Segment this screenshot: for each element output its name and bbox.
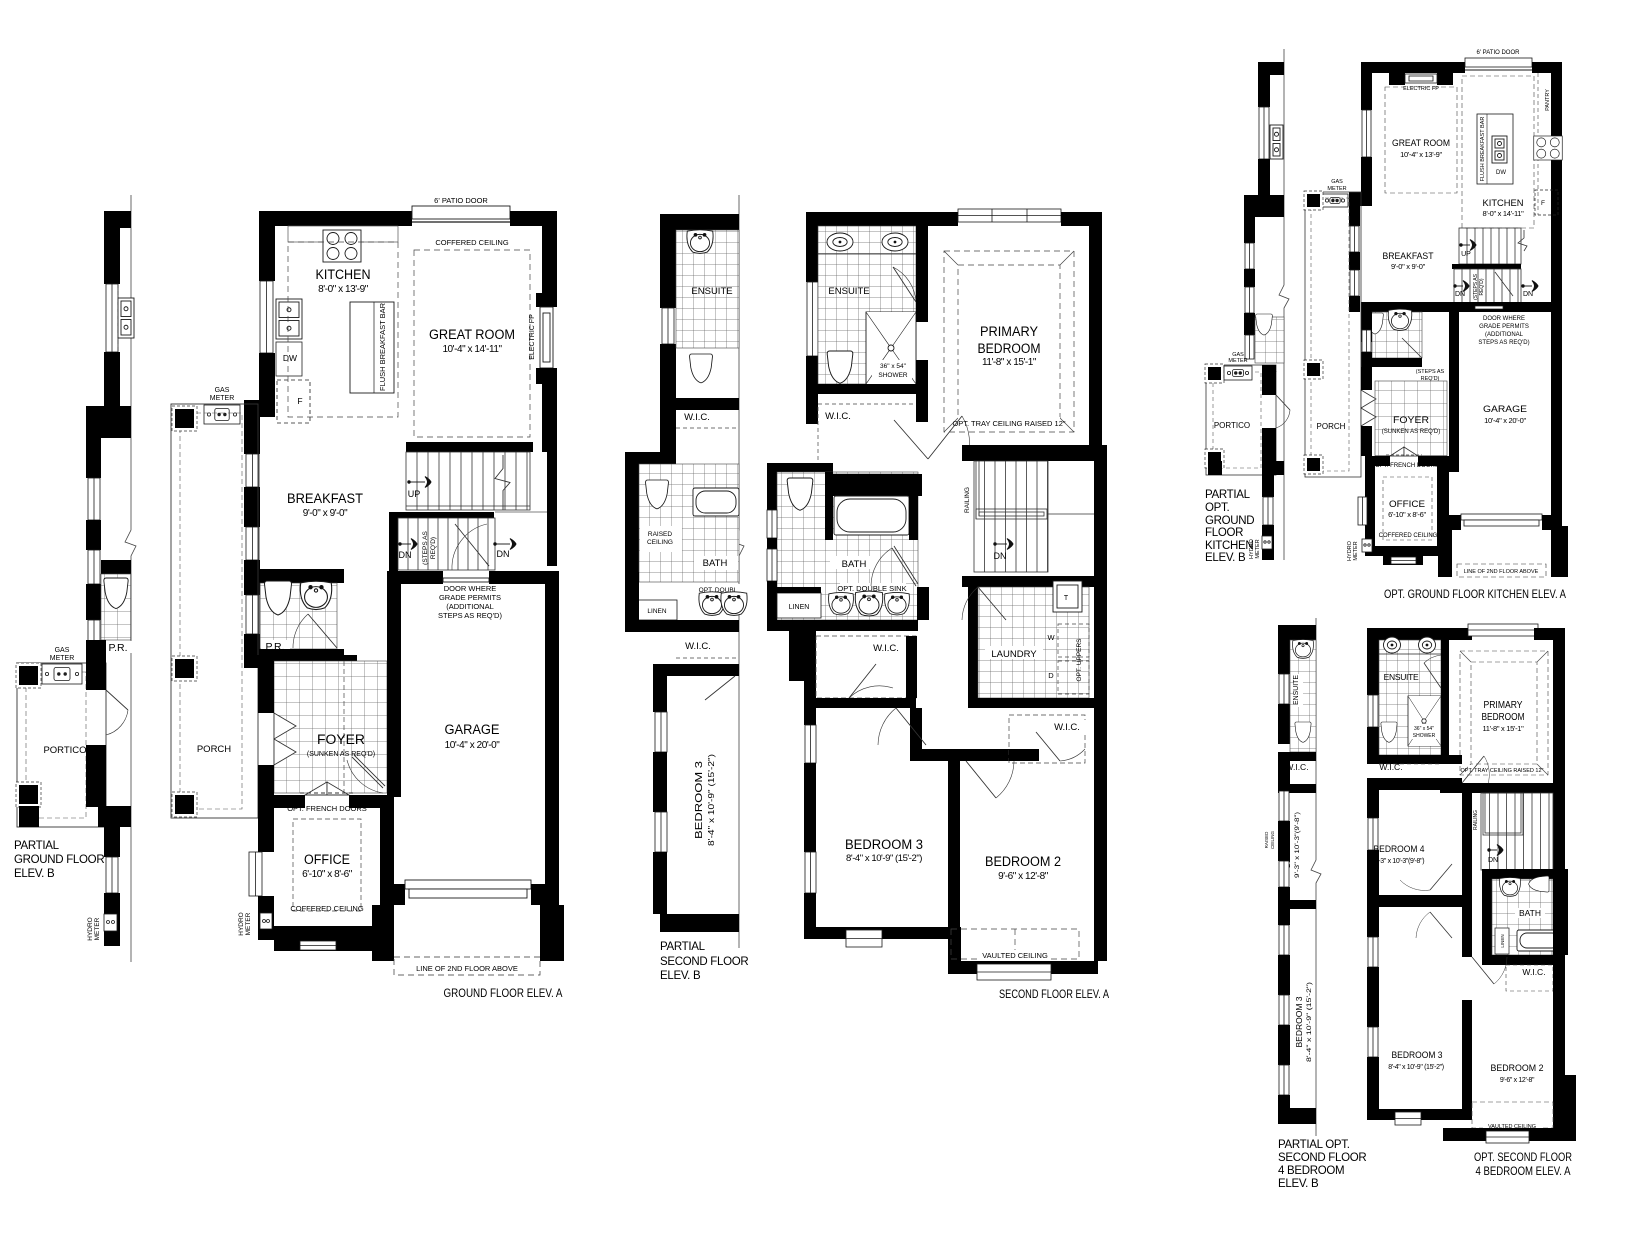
svg-text:8'-4" x 10'-9" (15'-2"): 8'-4" x 10'-9" (15'-2")	[1388, 1064, 1444, 1071]
svg-text:F: F	[297, 396, 302, 406]
svg-text:PARTIAL: PARTIAL	[14, 840, 60, 852]
svg-text:PRIMARY: PRIMARY	[980, 324, 1038, 339]
svg-text:ELEV. B: ELEV. B	[1278, 1178, 1319, 1190]
svg-text:METER: METER	[1327, 186, 1346, 192]
svg-text:W.I.C.: W.I.C.	[1054, 722, 1080, 733]
svg-text:COFFERED CEILING: COFFERED CEILING	[290, 904, 364, 913]
svg-text:OFFICE: OFFICE	[304, 852, 350, 867]
svg-text:11'-8" x 15'-1": 11'-8" x 15'-1"	[1482, 724, 1524, 733]
svg-text:8'-4" x 10'-9" (15'-2"): 8'-4" x 10'-9" (15'-2")	[707, 754, 716, 846]
svg-text:GROUND: GROUND	[1205, 515, 1254, 527]
svg-text:36" x 54": 36" x 54"	[880, 363, 907, 370]
svg-text:F: F	[1541, 200, 1545, 207]
svg-text:RAILING: RAILING	[964, 487, 971, 513]
svg-text:BATH: BATH	[703, 558, 728, 569]
svg-text:(ADDITIONAL: (ADDITIONAL	[446, 602, 494, 611]
svg-text:LINE OF 2ND FLOOR ABOVE: LINE OF 2ND FLOOR ABOVE	[416, 964, 518, 973]
svg-text:BEDROOM 3: BEDROOM 3	[1392, 1050, 1443, 1061]
svg-text:DN: DN	[1488, 857, 1498, 864]
svg-text:ENSUITE: ENSUITE	[1291, 675, 1300, 705]
svg-text:OPT.: OPT.	[1205, 502, 1229, 514]
svg-text:ELEV. B: ELEV. B	[660, 970, 701, 982]
svg-text:LINEN: LINEN	[1500, 934, 1505, 947]
svg-text:W.I.C.: W.I.C.	[1522, 967, 1545, 977]
svg-text:W.I.C.: W.I.C.	[685, 641, 711, 652]
svg-text:GAS: GAS	[55, 647, 70, 654]
svg-text:OPT. GROUND FLOOR KITCHEN ELEV: OPT. GROUND FLOOR KITCHEN ELEV. A	[1384, 587, 1566, 601]
svg-text:BREAKFAST: BREAKFAST	[1383, 251, 1434, 262]
svg-text:CEILING: CEILING	[1270, 831, 1275, 850]
svg-text:HYDRO: HYDRO	[87, 917, 94, 940]
svg-text:LINEN: LINEN	[647, 608, 666, 615]
svg-text:36" x 54": 36" x 54"	[1414, 726, 1434, 732]
svg-text:PORTICO: PORTICO	[43, 745, 86, 756]
svg-text:P.R.: P.R.	[108, 642, 127, 654]
svg-text:(ADDITIONAL: (ADDITIONAL	[1485, 332, 1524, 338]
svg-text:CEILING: CEILING	[647, 539, 673, 546]
svg-text:DN: DN	[497, 549, 510, 559]
svg-text:ELEV. B: ELEV. B	[1205, 552, 1246, 564]
svg-text:GAS: GAS	[215, 387, 230, 394]
svg-text:BEDROOM: BEDROOM	[1482, 712, 1525, 723]
svg-text:6' PATIO DOOR: 6' PATIO DOOR	[1477, 50, 1521, 56]
svg-text:(STEPS AS: (STEPS AS	[1416, 369, 1445, 375]
svg-text:W.I.C.: W.I.C.	[873, 643, 899, 654]
svg-text:METER: METER	[1255, 539, 1261, 558]
svg-text:PANTRY: PANTRY	[1545, 89, 1551, 111]
svg-text:10'-4" x 14'-11": 10'-4" x 14'-11"	[442, 344, 502, 355]
svg-text:ENSUITE: ENSUITE	[691, 286, 732, 297]
svg-text:DN: DN	[1455, 291, 1465, 298]
svg-text:BEDROOM 2: BEDROOM 2	[985, 854, 1061, 869]
svg-text:DN: DN	[399, 550, 412, 560]
svg-text:METER: METER	[245, 912, 252, 935]
svg-text:LINEN: LINEN	[789, 604, 810, 611]
svg-text:OPT. FRENCH DOORS: OPT. FRENCH DOORS	[1375, 463, 1439, 469]
svg-text:PORCH: PORCH	[1317, 422, 1346, 431]
svg-text:T: T	[1064, 595, 1069, 602]
svg-text:DOOR WHERE: DOOR WHERE	[444, 584, 497, 593]
svg-text:DOOR WHERE: DOOR WHERE	[1483, 316, 1525, 322]
svg-text:SECOND FLOOR: SECOND FLOOR	[660, 956, 748, 968]
svg-text:SHOWER: SHOWER	[878, 372, 908, 379]
svg-text:PRIMARY: PRIMARY	[1484, 700, 1523, 711]
svg-text:KITCHEN: KITCHEN	[1483, 198, 1524, 209]
svg-text:PARTIAL OPT.: PARTIAL OPT.	[1278, 1139, 1350, 1151]
svg-text:GARAGE: GARAGE	[1483, 404, 1527, 415]
svg-text:FLUSH BREAKFAST BAR: FLUSH BREAKFAST BAR	[380, 303, 387, 391]
svg-text:4 BEDROOM: 4 BEDROOM	[1278, 1165, 1344, 1177]
svg-text:FLUSH BREAKFAST BAR: FLUSH BREAKFAST BAR	[1480, 117, 1486, 182]
svg-text:(SUNKEN AS REQ'D): (SUNKEN AS REQ'D)	[1382, 429, 1441, 435]
svg-text:PARTIAL: PARTIAL	[660, 941, 706, 953]
svg-text:9'-6" x 12'-8": 9'-6" x 12'-8"	[1500, 1077, 1535, 1084]
svg-text:METER: METER	[210, 395, 235, 402]
svg-text:METER: METER	[1228, 358, 1247, 364]
svg-text:ELEV. B: ELEV. B	[14, 868, 55, 880]
svg-text:UP: UP	[1461, 251, 1471, 258]
svg-text:D: D	[1048, 671, 1054, 680]
svg-text:BEDROOM 2: BEDROOM 2	[1491, 1063, 1544, 1074]
svg-text:6'-10" x 8'-6": 6'-10" x 8'-6"	[302, 869, 353, 880]
svg-text:FOYER: FOYER	[317, 732, 365, 747]
svg-text:METER: METER	[94, 917, 101, 940]
svg-text:W.I.C.: W.I.C.	[1379, 762, 1402, 772]
svg-text:BEDROOM 3: BEDROOM 3	[693, 761, 705, 839]
svg-text:9'-3" x 10'-3"(9'-8"): 9'-3" x 10'-3"(9'-8")	[1374, 858, 1424, 865]
svg-text:GROUND FLOOR ELEV. A: GROUND FLOOR ELEV. A	[444, 986, 563, 1000]
svg-text:BATH: BATH	[842, 559, 867, 570]
svg-text:GROUND FLOOR: GROUND FLOOR	[14, 854, 104, 866]
svg-text:GAS: GAS	[1331, 179, 1343, 185]
svg-text:GRADE PERMITS: GRADE PERMITS	[1479, 324, 1529, 330]
svg-text:PORCH: PORCH	[197, 744, 231, 755]
svg-text:GREAT ROOM: GREAT ROOM	[429, 327, 515, 342]
svg-text:KITCHEN: KITCHEN	[1205, 540, 1253, 552]
svg-text:GARAGE: GARAGE	[445, 722, 500, 737]
svg-text:GREAT ROOM: GREAT ROOM	[1392, 138, 1450, 149]
svg-text:RAILING: RAILING	[1473, 810, 1479, 830]
svg-text:(STEPS AS: (STEPS AS	[422, 531, 429, 565]
svg-text:FLOOR: FLOOR	[1205, 527, 1243, 539]
svg-text:DW: DW	[1496, 170, 1506, 176]
svg-text:RAISED: RAISED	[648, 531, 673, 538]
svg-text:DN: DN	[994, 551, 1007, 561]
svg-text:STEPS AS REQ'D): STEPS AS REQ'D)	[438, 611, 502, 620]
svg-text:GRADE PERMITS: GRADE PERMITS	[439, 593, 501, 602]
svg-text:REQ'D): REQ'D)	[1479, 278, 1485, 295]
svg-text:W.I.C.: W.I.C.	[684, 412, 710, 423]
svg-text:OPT. TRAY CEILING RAISED 12": OPT. TRAY CEILING RAISED 12"	[952, 419, 1065, 428]
svg-text:SHOWER: SHOWER	[1413, 733, 1436, 739]
svg-text:DN: DN	[1523, 291, 1533, 298]
svg-text:(SUNKEN AS REQ'D): (SUNKEN AS REQ'D)	[307, 751, 375, 758]
svg-text:BEDROOM 3: BEDROOM 3	[845, 837, 923, 852]
svg-text:9'-6" x 12'-8": 9'-6" x 12'-8"	[998, 871, 1049, 882]
svg-text:8'-4" x 10'-9" (15'-2"): 8'-4" x 10'-9" (15'-2")	[846, 853, 922, 864]
svg-text:SECOND FLOOR ELEV. A: SECOND FLOOR ELEV. A	[999, 987, 1109, 1001]
svg-text:BREAKFAST: BREAKFAST	[287, 491, 363, 506]
svg-text:HYDRO: HYDRO	[238, 912, 245, 935]
svg-text:COFFERED CEILING: COFFERED CEILING	[435, 238, 509, 247]
svg-text:OPT. UPPERS: OPT. UPPERS	[1076, 638, 1083, 682]
svg-text:UP: UP	[408, 489, 421, 499]
svg-text:BEDROOM: BEDROOM	[978, 341, 1041, 356]
svg-text:COFFERED CEILING: COFFERED CEILING	[1379, 533, 1438, 539]
svg-text:BATH: BATH	[1519, 908, 1541, 918]
svg-text:W: W	[1047, 633, 1055, 642]
svg-text:LAUNDRY: LAUNDRY	[991, 649, 1037, 660]
svg-text:OPT. SECOND FLOOR: OPT. SECOND FLOOR	[1474, 1150, 1572, 1164]
svg-text:PARTIAL: PARTIAL	[1205, 489, 1251, 501]
svg-text:9'-0" x 9'-0": 9'-0" x 9'-0"	[1391, 262, 1426, 271]
svg-text:PORTICO: PORTICO	[1214, 421, 1250, 430]
svg-text:REQ'D): REQ'D)	[430, 537, 437, 559]
svg-text:BEDROOM 4: BEDROOM 4	[1374, 844, 1425, 855]
svg-text:6'-10" x 8'-6": 6'-10" x 8'-6"	[1388, 510, 1426, 519]
svg-text:9'-0" x 9'-0": 9'-0" x 9'-0"	[303, 508, 348, 519]
svg-text:8'-0" x 13'-9": 8'-0" x 13'-9"	[318, 284, 369, 295]
svg-text:W.I.C.: W.I.C.	[825, 411, 851, 422]
svg-text:SECOND FLOOR: SECOND FLOOR	[1278, 1152, 1366, 1164]
svg-text:STEPS AS REQ'D): STEPS AS REQ'D)	[1478, 340, 1529, 346]
svg-text:LINE OF 2ND FLOOR ABOVE: LINE OF 2ND FLOOR ABOVE	[1464, 569, 1539, 575]
svg-text:11'-8" x 15'-1": 11'-8" x 15'-1"	[982, 357, 1037, 368]
svg-text:BEDROOM 3: BEDROOM 3	[1294, 996, 1304, 1047]
svg-text:FOYER: FOYER	[1393, 415, 1429, 426]
svg-text:10'-4" x 20'-0": 10'-4" x 20'-0"	[445, 740, 501, 751]
svg-text:ENSUITE: ENSUITE	[828, 286, 869, 297]
svg-text:8'-4" x 10'-9" (15'-2"): 8'-4" x 10'-9" (15'-2")	[1306, 982, 1313, 1062]
svg-text:OPT. FRENCH DOORS: OPT. FRENCH DOORS	[287, 804, 367, 813]
svg-text:8'-0" x 14'-11": 8'-0" x 14'-11"	[1482, 209, 1524, 218]
svg-text:VAULTED CEILING: VAULTED CEILING	[982, 951, 1048, 960]
svg-text:METER: METER	[1353, 541, 1359, 560]
svg-text:KITCHEN: KITCHEN	[316, 267, 371, 282]
svg-text:10'-4" x 13'-9": 10'-4" x 13'-9"	[1400, 150, 1442, 159]
svg-text:DW: DW	[283, 353, 297, 363]
svg-text:4 BEDROOM ELEV. A: 4 BEDROOM ELEV. A	[1476, 1164, 1571, 1178]
svg-text:10'-4" x 20'-0": 10'-4" x 20'-0"	[1484, 416, 1526, 425]
svg-text:RAISED: RAISED	[1264, 831, 1269, 849]
svg-text:OFFICE: OFFICE	[1389, 499, 1425, 510]
svg-text:ENSUITE: ENSUITE	[1384, 672, 1419, 682]
svg-text:METER: METER	[50, 655, 75, 662]
svg-text:6' PATIO DOOR: 6' PATIO DOOR	[434, 196, 488, 205]
svg-text:9'-3" x 10'-3"(9'-8"): 9'-3" x 10'-3"(9'-8")	[1294, 812, 1301, 878]
